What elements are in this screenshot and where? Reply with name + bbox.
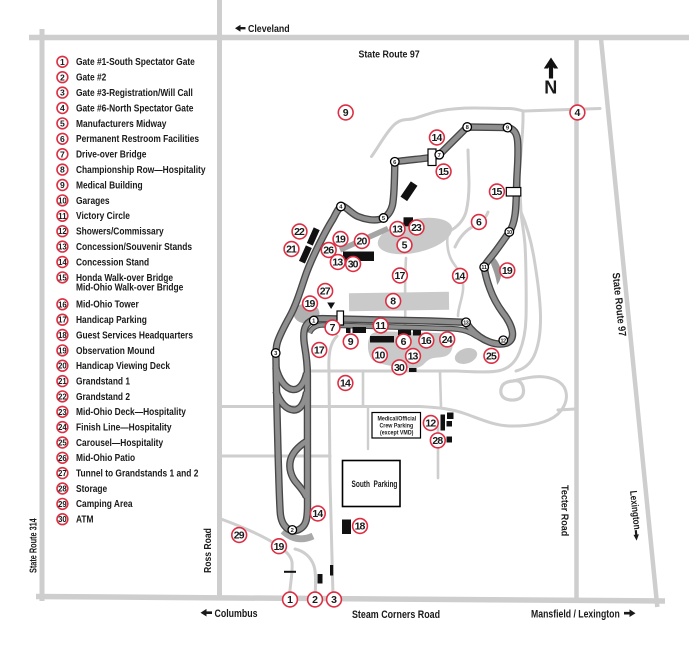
svg-text:Observation Mound: Observation Mound — [76, 345, 155, 356]
svg-text:2: 2 — [312, 594, 318, 606]
svg-text:State Route 97: State Route 97 — [359, 49, 420, 61]
svg-text:Concession/Souvenir Stands: Concession/Souvenir Stands — [76, 241, 192, 252]
svg-text:7: 7 — [330, 322, 336, 334]
svg-text:Handicap Parking: Handicap Parking — [76, 314, 147, 325]
svg-text:14: 14 — [340, 378, 351, 390]
svg-text:13: 13 — [408, 351, 419, 363]
svg-text:3: 3 — [331, 594, 337, 606]
svg-text:14: 14 — [432, 132, 443, 144]
svg-text:State Route 314: State Route 314 — [27, 518, 38, 573]
svg-text:19: 19 — [274, 541, 285, 553]
svg-text:10: 10 — [375, 350, 386, 362]
svg-text:24: 24 — [442, 334, 453, 346]
svg-text:Manufacturers Midway: Manufacturers Midway — [76, 118, 167, 129]
svg-text:19: 19 — [305, 298, 316, 310]
svg-text:21: 21 — [286, 244, 297, 256]
svg-text:9: 9 — [60, 180, 65, 190]
svg-text:7: 7 — [438, 153, 441, 159]
svg-text:Gate #6-North Spectator Gate: Gate #6-North Spectator Gate — [76, 103, 193, 114]
svg-text:4: 4 — [574, 107, 580, 119]
svg-text:1: 1 — [60, 57, 65, 67]
svg-text:30: 30 — [394, 362, 405, 374]
svg-text:Victory Circle: Victory Circle — [76, 211, 130, 222]
svg-text:30: 30 — [348, 259, 359, 271]
svg-text:Gate #3-Registration/Will Call: Gate #3-Registration/Will Call — [76, 87, 193, 98]
svg-text:Storage: Storage — [76, 483, 107, 494]
svg-text:20: 20 — [58, 362, 67, 371]
svg-text:1: 1 — [287, 594, 293, 606]
svg-text:13: 13 — [463, 320, 469, 326]
svg-text:29: 29 — [234, 530, 245, 542]
svg-text:25: 25 — [58, 439, 67, 448]
svg-text:20: 20 — [357, 236, 368, 248]
svg-text:Gate #2: Gate #2 — [76, 72, 106, 83]
svg-text:Grandstand 1: Grandstand 1 — [76, 376, 130, 387]
svg-text:25: 25 — [486, 350, 497, 362]
svg-text:14: 14 — [58, 258, 67, 267]
svg-text:10: 10 — [58, 196, 67, 205]
svg-text:(except VMD): (except VMD) — [380, 430, 413, 436]
svg-text:17: 17 — [58, 316, 67, 325]
svg-text:7: 7 — [60, 149, 65, 159]
svg-text:ATM: ATM — [76, 514, 94, 525]
svg-text:2: 2 — [60, 72, 65, 82]
svg-text:South Parking: South Parking — [352, 479, 398, 489]
svg-text:Showers/Commissary: Showers/Commissary — [76, 226, 164, 237]
svg-text:Permanent Restroom Facilities: Permanent Restroom Facilities — [76, 134, 199, 145]
svg-text:Mid-Ohio Patio: Mid-Ohio Patio — [76, 453, 135, 464]
svg-text:19: 19 — [335, 234, 346, 246]
svg-text:13: 13 — [332, 257, 343, 269]
svg-text:28: 28 — [58, 485, 67, 494]
svg-text:17: 17 — [314, 345, 325, 357]
svg-text:3: 3 — [60, 88, 65, 98]
svg-text:19: 19 — [502, 265, 513, 277]
svg-text:21: 21 — [58, 377, 67, 386]
svg-text:8: 8 — [60, 165, 65, 175]
svg-text:N: N — [544, 78, 557, 98]
svg-text:15: 15 — [58, 273, 67, 282]
svg-text:Mid-Ohio Deck—Hospitality: Mid-Ohio Deck—Hospitality — [76, 406, 187, 417]
svg-text:Columbus: Columbus — [215, 608, 258, 620]
svg-text:16: 16 — [58, 300, 67, 309]
svg-text:Crew Parking: Crew Parking — [380, 423, 414, 429]
svg-text:26: 26 — [323, 245, 334, 257]
svg-text:30: 30 — [58, 515, 67, 524]
svg-text:Cleveland: Cleveland — [248, 23, 290, 35]
svg-text:2: 2 — [291, 528, 294, 534]
svg-text:15: 15 — [438, 166, 449, 178]
svg-text:14: 14 — [455, 270, 466, 282]
svg-text:13: 13 — [58, 243, 67, 252]
svg-text:Medical/Official: Medical/Official — [378, 416, 417, 422]
svg-text:Drive-over Bridge: Drive-over Bridge — [76, 149, 146, 160]
svg-text:Tunnel to Grandstands 1 and 2: Tunnel to Grandstands 1 and 2 — [76, 468, 198, 479]
svg-text:12: 12 — [425, 418, 436, 430]
svg-text:15: 15 — [492, 186, 503, 198]
svg-text:Carousel—Hospitality: Carousel—Hospitality — [76, 437, 164, 448]
svg-text:11: 11 — [58, 212, 67, 221]
svg-text:Concession Stand: Concession Stand — [76, 257, 149, 268]
svg-text:8: 8 — [390, 296, 396, 308]
svg-text:Championship Row—Hospitality: Championship Row—Hospitality — [76, 164, 206, 175]
svg-text:18: 18 — [58, 331, 67, 340]
svg-text:Mid-Ohio Walk-over Bridge: Mid-Ohio Walk-over Bridge — [76, 282, 183, 293]
svg-text:Steam Corners Road: Steam Corners Road — [352, 609, 440, 621]
svg-text:Camping Area: Camping Area — [76, 499, 133, 510]
svg-text:4: 4 — [60, 103, 65, 113]
svg-text:11: 11 — [481, 265, 487, 271]
svg-text:12: 12 — [58, 227, 67, 236]
svg-text:13: 13 — [392, 224, 403, 236]
svg-text:12: 12 — [501, 338, 507, 344]
svg-text:Tecter Road: Tecter Road — [558, 485, 570, 536]
svg-text:28: 28 — [432, 435, 443, 447]
svg-text:29: 29 — [58, 500, 67, 509]
svg-text:27: 27 — [320, 286, 331, 298]
svg-text:Finish Line—Hospitality: Finish Line—Hospitality — [76, 422, 172, 433]
svg-text:19: 19 — [58, 346, 67, 355]
svg-text:Ross Road: Ross Road — [202, 528, 213, 573]
svg-text:18: 18 — [355, 521, 366, 533]
svg-text:26: 26 — [58, 454, 67, 463]
svg-text:Guest Services Headquarters: Guest Services Headquarters — [76, 330, 193, 341]
svg-text:9: 9 — [343, 107, 349, 119]
svg-text:22: 22 — [58, 392, 67, 401]
svg-text:Garages: Garages — [76, 195, 110, 206]
svg-text:9: 9 — [348, 336, 354, 348]
svg-text:17: 17 — [395, 270, 406, 282]
svg-text:5: 5 — [60, 119, 65, 129]
svg-text:Grandstand 2: Grandstand 2 — [76, 391, 130, 402]
svg-text:6: 6 — [60, 134, 65, 144]
svg-text:6: 6 — [476, 217, 482, 229]
svg-text:6: 6 — [401, 336, 407, 348]
svg-text:Mansfield / Lexington: Mansfield / Lexington — [531, 609, 620, 621]
svg-text:27: 27 — [58, 469, 67, 478]
svg-text:Gate #1-South Spectator Gate: Gate #1-South Spectator Gate — [76, 57, 195, 68]
svg-text:22: 22 — [294, 226, 305, 238]
svg-text:Medical Building: Medical Building — [76, 180, 143, 191]
svg-text:23: 23 — [58, 408, 67, 417]
svg-text:11: 11 — [375, 320, 386, 332]
svg-text:23: 23 — [411, 222, 422, 234]
svg-text:24: 24 — [58, 423, 67, 432]
svg-text:16: 16 — [421, 335, 432, 347]
svg-text:Mid-Ohio Tower: Mid-Ohio Tower — [76, 299, 139, 310]
svg-text:14: 14 — [312, 508, 323, 520]
svg-text:10: 10 — [507, 230, 513, 236]
svg-text:Handicap Viewing Deck: Handicap Viewing Deck — [76, 360, 171, 371]
svg-text:5: 5 — [402, 240, 408, 252]
